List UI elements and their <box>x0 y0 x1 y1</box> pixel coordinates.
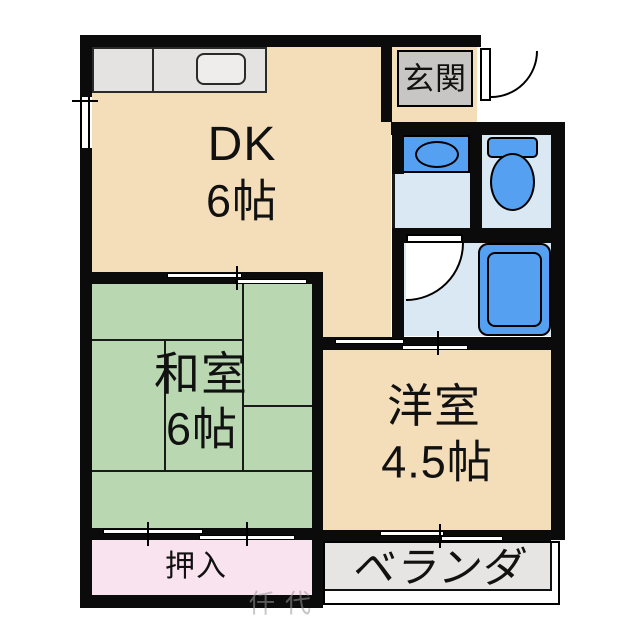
veranda-label: ベランダ <box>350 547 529 589</box>
sliding-door-tick <box>437 331 439 355</box>
washitsu-label: 和室 <box>154 351 248 397</box>
yoshitsu-size-label: 4.5帖 <box>381 440 493 485</box>
oshiire-fusuma-icon <box>103 529 203 534</box>
bath-door-icon <box>406 234 463 243</box>
entry-door-swing <box>491 51 537 97</box>
dk-window-tick <box>72 100 98 102</box>
counter-divider <box>152 49 154 91</box>
wall-washroom-toilet <box>470 122 482 231</box>
fusuma-tick <box>246 522 248 546</box>
yoshitsu-window-icon <box>441 536 503 541</box>
tatami-line <box>92 470 312 472</box>
yoshitsu-label: 洋室 <box>387 383 481 429</box>
doorway-edge <box>392 174 395 232</box>
fusuma-tick <box>147 522 149 546</box>
yoshitsu-sliding-door-icon <box>402 345 468 350</box>
kitchen-counter <box>92 47 267 93</box>
dk-window-glass <box>88 97 90 148</box>
bathtub-icon <box>478 243 551 336</box>
tatami-line <box>92 339 243 341</box>
bathtub-inner <box>487 252 542 327</box>
toilet-bowl-icon <box>490 153 535 211</box>
washitsu-size-label: 6帖 <box>166 407 238 452</box>
bath-door-swing <box>406 243 463 300</box>
yoshitsu-sliding-door-icon <box>335 339 404 344</box>
wall-right <box>551 122 565 540</box>
wall-bathroom-left <box>392 232 404 350</box>
wall-washroom-left <box>392 122 404 174</box>
dk-washitsu-fusuma-icon <box>235 279 307 284</box>
wall-top <box>80 35 481 47</box>
dk-washitsu-fusuma-icon <box>167 273 242 278</box>
wall-genkan-dk <box>381 35 392 122</box>
fusuma-tick <box>236 266 238 290</box>
washbasin-bowl <box>415 141 459 168</box>
yoshitsu-window-icon <box>380 531 444 536</box>
wall-center-vertical <box>312 272 323 608</box>
watermark-text: 仟代 <box>249 584 321 621</box>
floor-plan: DK 6帖 玄関 和室 6帖 洋室 4.5帖 押入 ベランダ 仟代 <box>0 0 640 640</box>
washbasin-icon <box>402 135 470 173</box>
kitchen-sink-icon <box>196 53 246 85</box>
entry-door-icon <box>480 48 491 101</box>
tatami-line <box>243 405 312 407</box>
dk-size-label: 6帖 <box>206 179 278 224</box>
genkan-label: 玄関 <box>403 64 467 95</box>
dk-window-glass <box>80 97 82 148</box>
dk-label: DK <box>208 121 277 169</box>
oshiire-label: 押入 <box>165 552 227 582</box>
